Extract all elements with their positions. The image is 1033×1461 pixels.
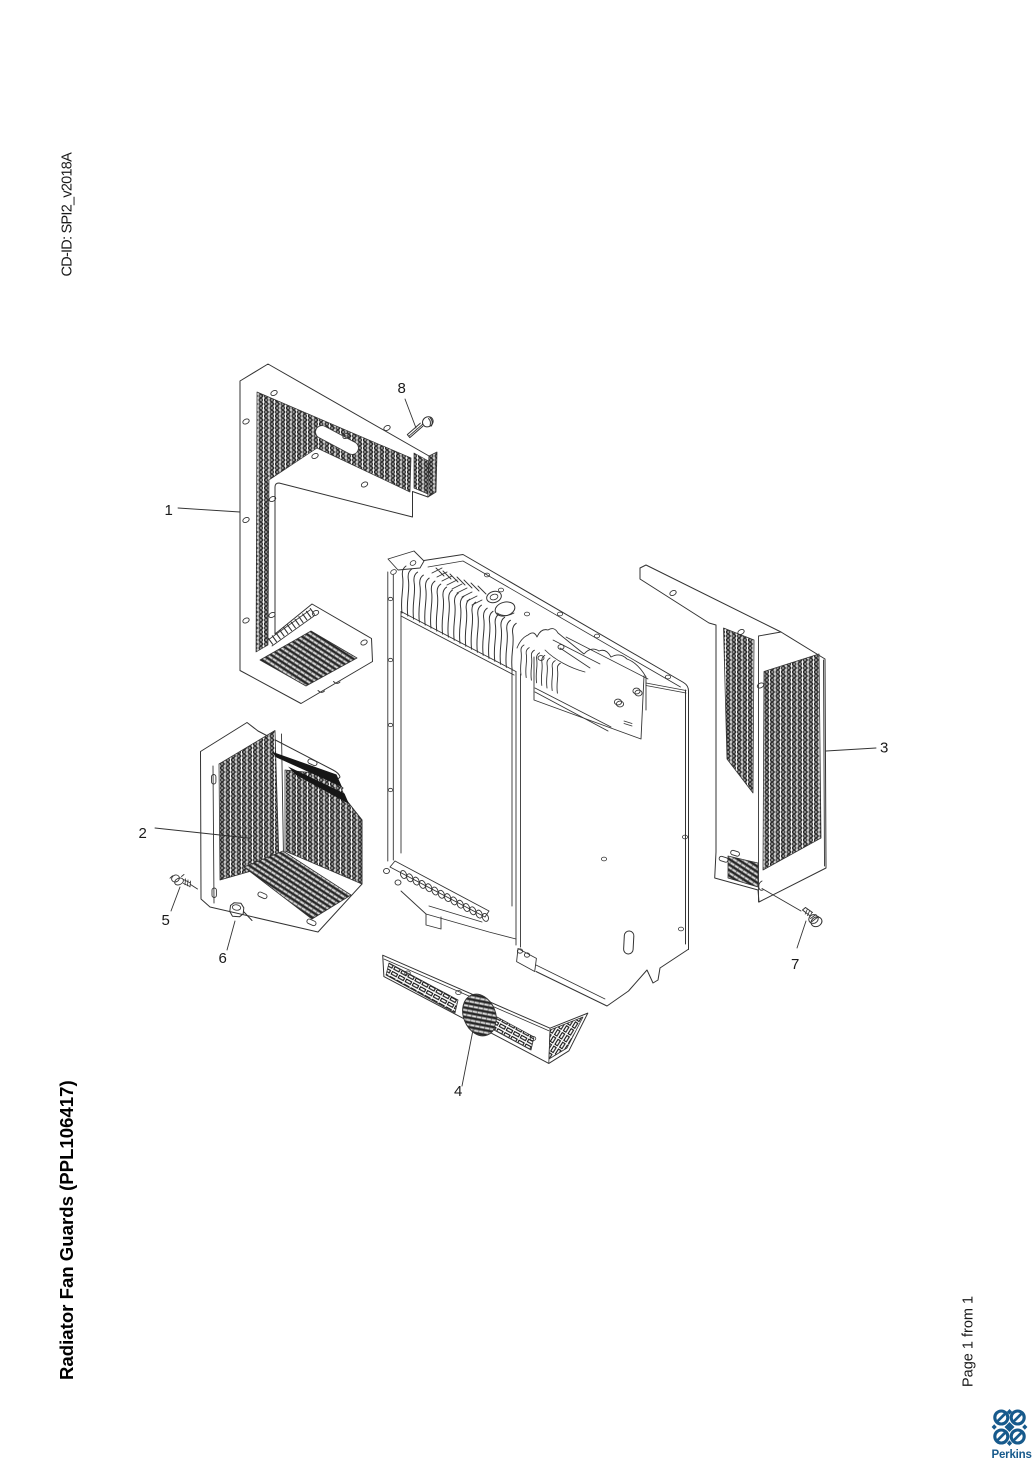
- svg-text:8: 8: [398, 380, 406, 397]
- svg-text:7: 7: [791, 956, 799, 973]
- svg-text:3: 3: [880, 740, 888, 757]
- svg-text:1: 1: [165, 502, 173, 519]
- svg-text:2: 2: [139, 825, 147, 842]
- svg-text:6: 6: [219, 950, 227, 967]
- svg-text:CD-ID: SPI2_v2018A: CD-ID: SPI2_v2018A: [60, 152, 76, 277]
- svg-text:5: 5: [162, 912, 170, 929]
- svg-text:4: 4: [454, 1083, 462, 1100]
- svg-text:Radiator Fan Guards (PPL106417: Radiator Fan Guards (PPL106417): [56, 1080, 77, 1380]
- svg-text:Page 1 from 1: Page 1 from 1: [961, 1296, 977, 1387]
- svg-text:Perkins: Perkins: [992, 1449, 1032, 1461]
